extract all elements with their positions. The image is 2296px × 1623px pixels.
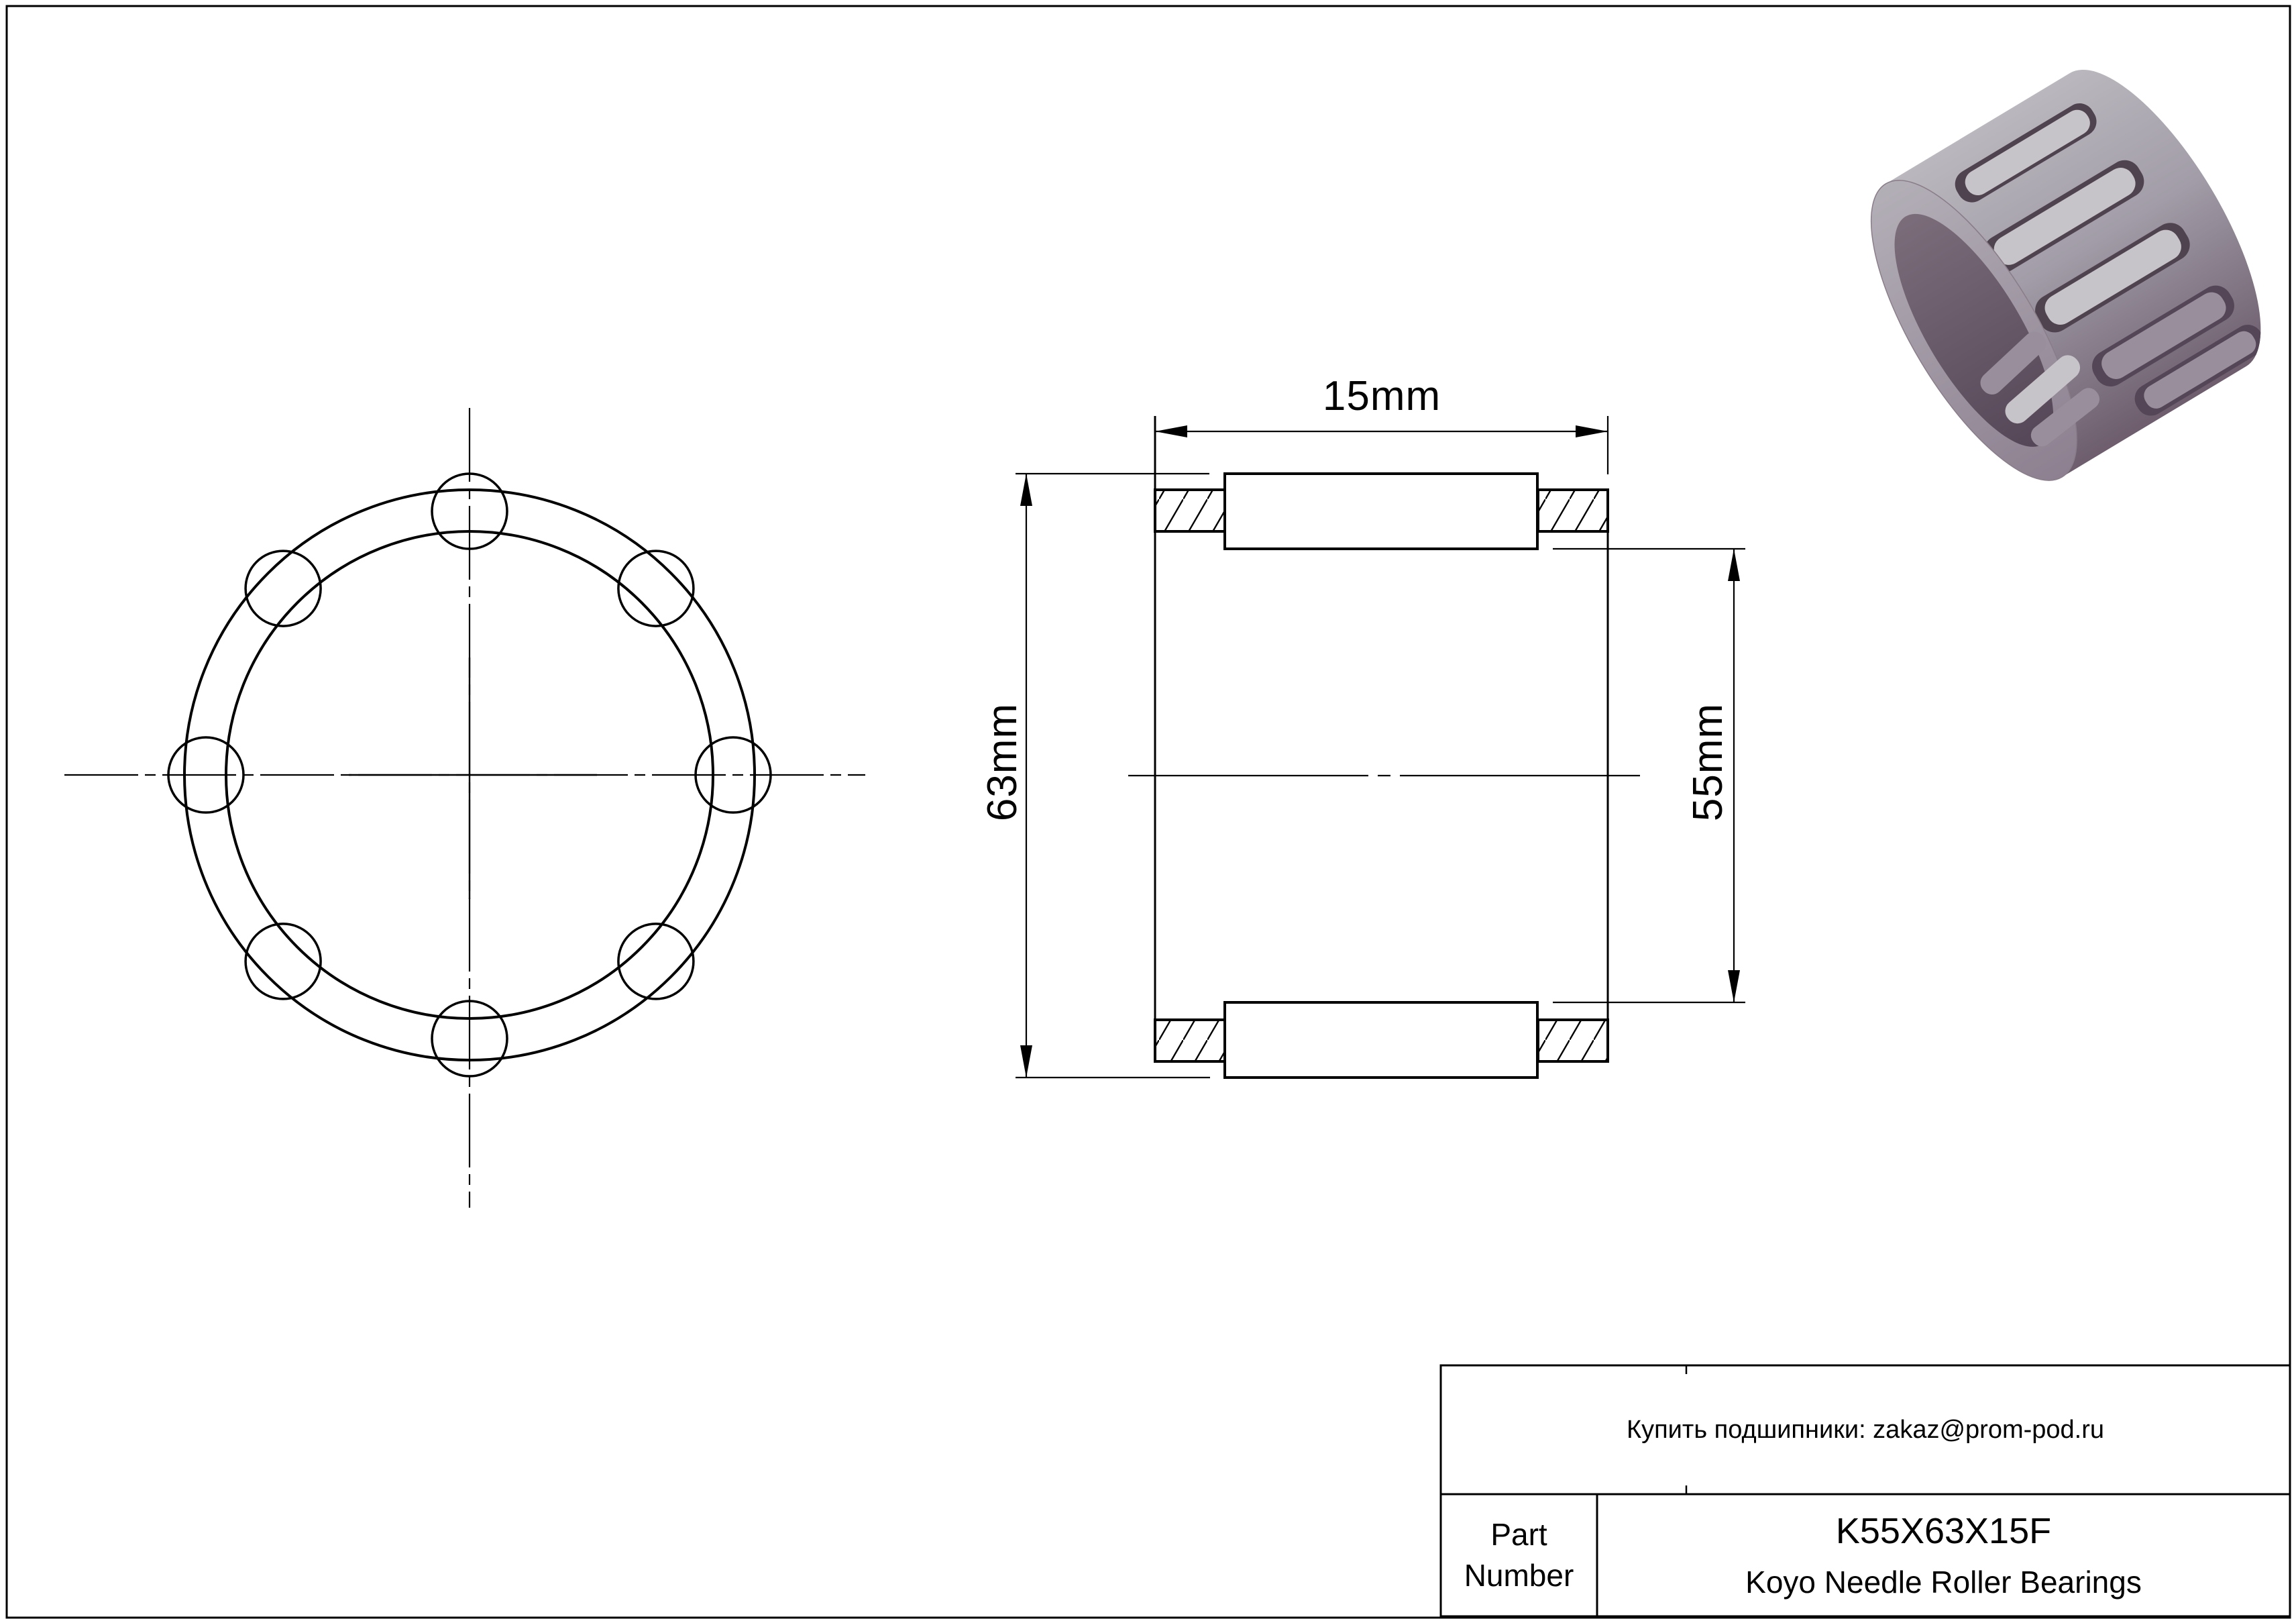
width-dimension-label: 15mm (1281, 368, 1482, 425)
width-arrow-left (1155, 425, 1187, 437)
roller-section-bottom (1225, 1002, 1537, 1078)
cage-section-bottom-left (1155, 1020, 1225, 1061)
roller-circle (245, 924, 321, 999)
od-arrow-bottom (1020, 1045, 1032, 1078)
roller-circle (618, 551, 694, 626)
contact-text: Купить подшипники: zakaz@prom-pod.ru (1441, 1365, 2290, 1494)
roller-section-top (1225, 474, 1537, 549)
bore-diameter-dimension-label: 55mm (1678, 662, 1738, 863)
section-view (1016, 416, 1745, 1078)
drawing-sheet: 15mm 63mm 55mm Купить подшипники: zakaz@… (0, 0, 2296, 1623)
width-arrow-right (1576, 425, 1608, 437)
bore-arrow-top (1728, 549, 1740, 581)
part-number-label: Part Number (1461, 1494, 1577, 1616)
product-line-text: Koyo Needle Roller Bearings (1745, 1564, 2142, 1600)
bore-arrow-bottom (1728, 970, 1740, 1002)
part-number-cell: K55X63X15F Koyo Needle Roller Bearings (1597, 1494, 2290, 1616)
bearing-3d-render (1833, 42, 2296, 509)
roller-circle (245, 551, 321, 626)
front-view (64, 408, 865, 1208)
cage-section-top-left (1155, 490, 1225, 531)
part-number-value: K55X63X15F (1836, 1510, 2051, 1552)
dimension-width (1155, 425, 1608, 437)
roller-circle (618, 924, 694, 999)
outer-diameter-dimension-label: 63mm (972, 662, 1032, 863)
cage-section-top-right (1538, 490, 1608, 531)
od-arrow-top (1020, 474, 1032, 506)
cage-section-bottom-right (1538, 1020, 1608, 1061)
